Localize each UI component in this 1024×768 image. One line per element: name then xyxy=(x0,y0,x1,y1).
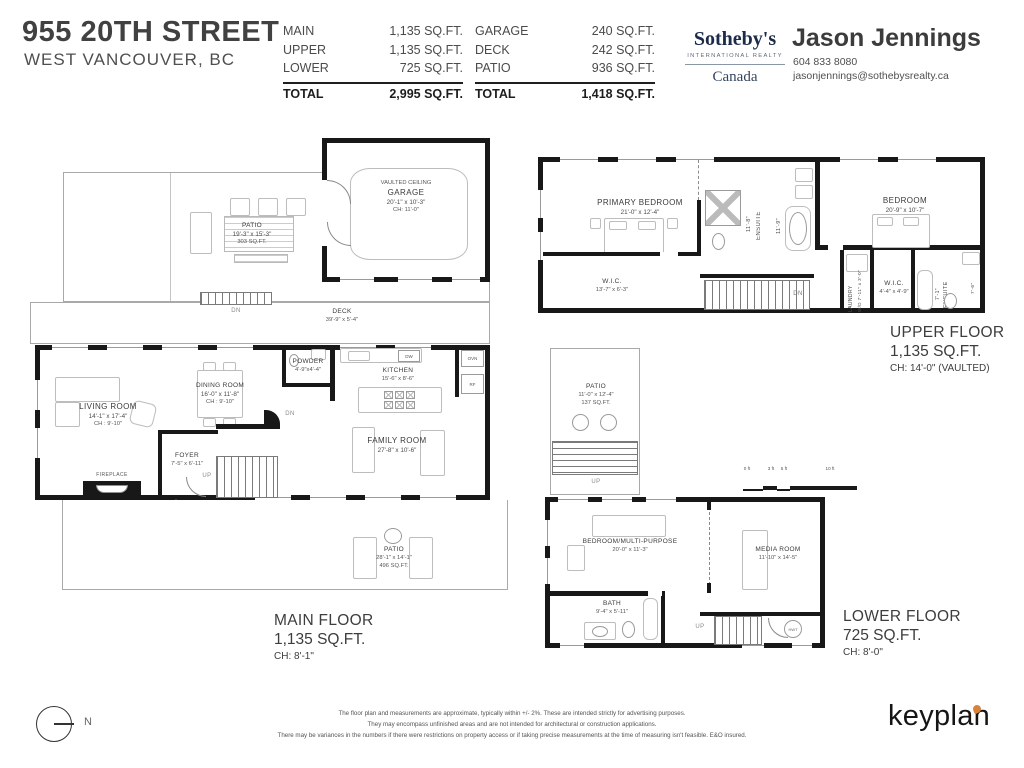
room-name: FOYER xyxy=(171,452,203,461)
patio-chair-icon xyxy=(572,414,589,431)
pillow-icon xyxy=(609,221,627,230)
area-value: 242 SQ.FT. xyxy=(592,43,655,62)
window-icon xyxy=(162,345,198,350)
room-name: FAMILY ROOM xyxy=(367,436,426,447)
area-label: UPPER xyxy=(283,43,326,62)
patio-step-line xyxy=(170,173,171,301)
patio-armchair-icon xyxy=(409,537,433,579)
area-table-exterior: GARAGE 240 SQ.FT. DECK 242 SQ.FT. PATIO … xyxy=(475,24,655,101)
burner-icon xyxy=(395,391,404,399)
area-value: 936 SQ.FT. xyxy=(592,61,655,80)
sink-icon xyxy=(592,626,608,637)
window-icon xyxy=(340,277,374,282)
window-icon xyxy=(538,190,543,218)
patio-chair-icon xyxy=(286,198,306,216)
room-dims: 7'-5" x 6'-11" xyxy=(171,461,203,469)
wall-segment xyxy=(158,430,162,500)
fireplace-opening xyxy=(96,485,128,493)
room-name: DECK xyxy=(326,308,358,317)
window-icon xyxy=(602,497,632,502)
window-icon xyxy=(840,157,878,162)
room-name: BEDROOM xyxy=(883,196,927,207)
scale-segment xyxy=(743,489,763,491)
room-label-primary-bedroom: PRIMARY BEDROOM 21'-0" x 12'-4" xyxy=(597,198,683,217)
dishwasher-icon: DW xyxy=(398,350,420,362)
main-floor-title: MAIN FLOOR 1,135 SQ.FT. CH: 8'-1" xyxy=(274,612,373,663)
room-label-garage: VAULTED CEILING GARAGE 20'-1" x 10'-3" C… xyxy=(381,180,432,215)
entry-stairs xyxy=(552,441,638,475)
scale-segment xyxy=(763,486,777,490)
fridge-icon: RF xyxy=(461,374,484,394)
floor-ceiling: CH: 14'-0" (VAULTED) xyxy=(890,363,1004,375)
area-value: 725 SQ.FT. xyxy=(400,61,463,80)
agent-name: Jason Jennings xyxy=(792,24,981,53)
wall-segment xyxy=(700,274,814,278)
room-dims: 28'-1" x 14'-1" xyxy=(376,555,412,563)
window-icon xyxy=(545,520,550,546)
bbq-icon xyxy=(190,212,212,254)
area-label: GARAGE xyxy=(475,24,529,43)
patio-table-icon xyxy=(384,528,402,544)
room-name: PRIMARY BEDROOM xyxy=(597,198,683,209)
area-total-value: 2,995 SQ.FT. xyxy=(389,87,463,101)
sink-icon xyxy=(795,168,813,182)
wall-segment xyxy=(282,383,334,387)
room-label-powder: POWDER 4'-9"x4'-4" xyxy=(292,358,323,375)
area-row-garage: GARAGE 240 SQ.FT. xyxy=(475,24,655,43)
wall-segment xyxy=(455,345,459,397)
window-icon xyxy=(792,643,812,648)
area-label: MAIN xyxy=(283,24,314,43)
up-marker: UP xyxy=(591,479,600,485)
door-opening xyxy=(648,591,662,596)
wall-segment xyxy=(911,250,915,313)
burner-icon xyxy=(406,391,415,399)
window-icon xyxy=(398,277,432,282)
floor-ceiling: CH: 8'-0" xyxy=(843,647,961,659)
hot-water-tank-icon: HWT xyxy=(784,620,802,638)
floor-name: LOWER FLOOR xyxy=(843,608,961,627)
dining-chair-icon xyxy=(203,418,216,427)
scale-tick: 5 ft xyxy=(781,466,787,471)
fireplace-label: FIREPLACE xyxy=(96,472,127,478)
room-label-dining: DINING ROOM 16'-0" x 11'-8" CH : 9'-10" xyxy=(196,382,244,407)
window-icon xyxy=(558,497,588,502)
wall-segment xyxy=(282,345,286,387)
room-dims: 11'-0" x 12'-4" xyxy=(578,392,613,400)
floor-ceiling: CH: 8'-1" xyxy=(274,651,373,663)
divider xyxy=(685,64,785,65)
room-name: W.I.C. xyxy=(596,278,628,287)
room-dims: 19'-3" x 15'-3" xyxy=(233,231,272,240)
disclaimer-line: The floor plan and measurements are appr… xyxy=(0,710,1024,717)
room-area: 137 SQ.FT. xyxy=(578,400,613,408)
room-dims: 20'-1" x 10'-3" xyxy=(381,199,432,208)
main-stairs xyxy=(216,456,278,498)
dn-marker: DN xyxy=(231,308,240,314)
toilet-icon xyxy=(944,293,957,309)
ensuite-dim2-vertical: 7'-6" xyxy=(971,268,976,294)
room-dims: 14'-1" x 17'-4" xyxy=(79,413,137,422)
window-icon xyxy=(107,345,143,350)
area-total-label: TOTAL xyxy=(475,87,516,101)
floor-name: UPPER FLOOR xyxy=(890,324,1004,343)
dn-marker: DN xyxy=(793,291,802,297)
wall-segment xyxy=(661,596,665,648)
upper-floor-title: UPPER FLOOR 1,135 SQ.FT. CH: 14'-0" (VAU… xyxy=(890,324,1004,375)
room-label-patio-top: PATIO 19'-3" x 15'-3" 303 SQ.FT. xyxy=(233,222,272,247)
room-dims: 21'-0" x 12'-4" xyxy=(597,209,683,218)
room-label-deck: DECK 39'-9" x 5'-4" xyxy=(326,308,358,325)
room-name: LIVING ROOM xyxy=(79,402,137,413)
patio-chair-icon xyxy=(258,198,278,216)
room-name: KITCHEN xyxy=(382,367,414,376)
wall-segment xyxy=(158,430,218,434)
area-row-upper: UPPER 1,135 SQ.FT. xyxy=(283,43,463,62)
area-row-patio: PATIO 936 SQ.FT. xyxy=(475,61,655,80)
address-line2: WEST VANCOUVER, BC xyxy=(24,50,235,70)
floor-area: 725 SQ.FT. xyxy=(843,627,961,646)
wall-segment xyxy=(707,500,711,510)
deck-outline xyxy=(30,302,490,344)
window-icon xyxy=(545,558,550,584)
burner-icon xyxy=(384,391,393,399)
area-total-label: TOTAL xyxy=(283,87,324,101)
laundry-label-vertical: LAUNDRY xyxy=(848,274,854,312)
window-icon xyxy=(560,157,598,162)
area-label: DECK xyxy=(475,43,510,62)
room-dims: 4'-4" x 4'-9" xyxy=(879,289,908,297)
room-label-family: FAMILY ROOM 27'-8" x 10'-6" xyxy=(367,436,426,455)
brokerage-name: Sotheby's xyxy=(676,28,794,51)
disclaimer-line: They may encompass unfinished areas and … xyxy=(0,721,1024,728)
toilet-icon xyxy=(712,233,725,250)
floor-area: 1,135 SQ.FT. xyxy=(890,343,1004,362)
agent-phone: 604 833 8080 xyxy=(793,56,857,68)
wall-segment xyxy=(545,591,665,596)
ensuite-label-vertical: ENSUITE xyxy=(756,192,762,240)
wall-segment xyxy=(815,157,820,250)
room-dims: 39'-9" x 5'-4" xyxy=(326,317,358,325)
floorplan-flyer: 955 20TH STREET WEST VANCOUVER, BC MAIN … xyxy=(0,0,1024,768)
burner-icon xyxy=(384,401,393,409)
window-icon xyxy=(52,345,88,350)
room-name: BATH xyxy=(596,600,628,609)
area-value: 1,135 SQ.FT. xyxy=(389,43,463,62)
area-row-total-interior: TOTAL 2,995 SQ.FT. xyxy=(283,82,463,101)
sink-icon xyxy=(795,185,813,199)
brokerage-tagline: INTERNATIONAL REALTY xyxy=(676,53,794,59)
room-label-bedroom-multi: BEDROOM/MULTI-PURPOSE 20'-0" x 11'-3" xyxy=(583,538,678,555)
agent-email: jasonjennings@sothebysrealty.ca xyxy=(793,70,949,82)
window-icon xyxy=(618,157,656,162)
room-label-bedroom: BEDROOM 20'-9" x 10'-7" xyxy=(883,196,927,215)
window-icon xyxy=(646,497,676,502)
sofa-icon xyxy=(592,515,666,537)
laundry-dim-vertical: W/D 7'-11" x 3'-0" xyxy=(857,272,862,312)
bathtub-basin-icon xyxy=(789,212,807,245)
floor-name: MAIN FLOOR xyxy=(274,612,373,631)
brokerage-logo: Sotheby's INTERNATIONAL REALTY Canada xyxy=(676,28,794,86)
ensuite-dim-vertical: 11'-8" xyxy=(746,198,752,232)
window-icon xyxy=(898,157,936,162)
area-value: 1,135 SQ.FT. xyxy=(389,24,463,43)
area-row-lower: LOWER 725 SQ.FT. xyxy=(283,61,463,80)
nightstand-icon xyxy=(590,218,601,229)
up-marker: UP xyxy=(695,624,704,630)
floor-area: 1,135 SQ.FT. xyxy=(274,631,373,650)
wall-segment xyxy=(707,583,711,593)
wall-segment xyxy=(330,345,335,401)
glass-wall xyxy=(698,160,699,200)
patio-bench-icon xyxy=(234,254,288,263)
room-dims: 15'-6" x 8'-6" xyxy=(382,376,414,384)
area-row-total-exterior: TOTAL 1,418 SQ.FT. xyxy=(475,82,655,101)
room-dims: 20'-0" x 11'-3" xyxy=(583,547,678,555)
room-area: 496 SQ.FT. xyxy=(376,563,412,571)
room-name: GARAGE xyxy=(381,188,432,199)
pillow-icon xyxy=(638,221,656,230)
room-dims: 4'-9"x4'-4" xyxy=(292,367,323,375)
ensuite-dim-vertical: 7'-1" xyxy=(935,272,941,300)
room-name: BEDROOM/MULTI-PURPOSE xyxy=(583,538,678,547)
room-note: VAULTED CEILING xyxy=(381,180,432,188)
room-label-living: LIVING ROOM 14'-1" x 17'-4" CH : 9'-10" xyxy=(79,402,137,429)
window-icon xyxy=(35,380,40,410)
room-label-entry-patio: PATIO 11'-0" x 12'-4" 137 SQ.FT. xyxy=(578,383,613,407)
area-label: PATIO xyxy=(475,61,511,80)
room-name: W.I.C. xyxy=(879,280,908,289)
wall-segment xyxy=(870,250,874,313)
window-icon xyxy=(560,643,584,648)
room-ch: CH : 9'-10" xyxy=(196,399,244,407)
room-area: 303 SQ.FT. xyxy=(233,239,272,247)
lower-floor-title: LOWER FLOOR 725 SQ.FT. CH: 8'-0" xyxy=(843,608,961,659)
shower-icon xyxy=(705,190,741,226)
sofa-chaise-icon xyxy=(55,402,80,427)
room-dims: 9'-4" x 5'-11" xyxy=(596,609,628,617)
window-icon xyxy=(452,277,480,282)
window-icon xyxy=(217,345,253,350)
room-label-media: MEDIA ROOM 11'-10" x 14'-5" xyxy=(755,546,800,563)
room-label-wic1: W.I.C. 13'-7" x 6'-3" xyxy=(596,278,628,295)
area-row-main: MAIN 1,135 SQ.FT. xyxy=(283,24,463,43)
wall-segment xyxy=(216,424,268,429)
sink-icon xyxy=(962,252,980,265)
room-label-kitchen: KITCHEN 15'-6" x 8'-6" xyxy=(382,367,414,384)
burner-icon xyxy=(395,401,404,409)
room-dims: 16'-0" x 11'-8" xyxy=(196,391,244,400)
area-value: 240 SQ.FT. xyxy=(592,24,655,43)
room-dims: 13'-7" x 6'-3" xyxy=(596,287,628,295)
bathtub-icon xyxy=(917,270,933,310)
patio-chair-icon xyxy=(230,198,250,216)
oven-icon: OVN xyxy=(461,350,484,367)
room-name: POWDER xyxy=(292,358,323,367)
area-table-interior: MAIN 1,135 SQ.FT. UPPER 1,135 SQ.FT. LOW… xyxy=(283,24,463,101)
bathtub-icon xyxy=(643,598,658,640)
area-total-value: 1,418 SQ.FT. xyxy=(581,87,655,101)
dining-chair-icon xyxy=(203,362,216,371)
room-dims: 11'-10" x 14'-5" xyxy=(755,555,800,563)
room-label-patio-bottom: PATIO 28'-1" x 14'-1" 496 SQ.FT. xyxy=(376,546,412,570)
room-ch: CH: 11'-0" xyxy=(381,207,432,215)
deck-stairs xyxy=(200,292,272,305)
room-ch: CH : 9'-10" xyxy=(79,421,137,429)
ensuite-dim2-vertical: 11'-9" xyxy=(776,204,782,234)
patio-chair-icon xyxy=(600,414,617,431)
address-line1: 955 20TH STREET xyxy=(22,16,279,49)
area-row-deck: DECK 242 SQ.FT. xyxy=(475,43,655,62)
door-opening xyxy=(660,252,678,256)
wall-segment xyxy=(840,250,844,313)
room-label-foyer: FOYER 7'-5" x 6'-11" xyxy=(171,452,203,469)
kitchen-sink-icon xyxy=(348,351,370,361)
room-name: PATIO xyxy=(233,222,272,231)
brokerage-country: Canada xyxy=(676,69,794,86)
pillow-icon xyxy=(877,217,893,226)
room-name: PATIO xyxy=(376,546,412,555)
scale-tick: 10 ft xyxy=(826,466,835,471)
lower-stairs xyxy=(714,616,762,645)
nightstand-icon xyxy=(667,218,678,229)
disclaimer-line: There may be variances in the numbers if… xyxy=(0,732,1024,739)
sofa-icon xyxy=(55,377,120,402)
toilet-icon xyxy=(622,621,635,638)
room-name: PATIO xyxy=(578,383,613,392)
burner-icon xyxy=(406,401,415,409)
room-name: MEDIA ROOM xyxy=(755,546,800,555)
window-icon xyxy=(676,157,714,162)
scale-tick: 0 ft xyxy=(744,466,750,471)
room-dims: 27'-8" x 10'-6" xyxy=(367,447,426,456)
scale-segment xyxy=(790,486,857,490)
window-icon xyxy=(35,428,40,458)
room-name: DINING ROOM xyxy=(196,382,244,391)
patio-armchair-icon xyxy=(353,537,377,579)
pillow-icon xyxy=(903,217,919,226)
room-label-bath: BATH 9'-4" x 5'-11" xyxy=(596,600,628,617)
sliding-partition xyxy=(709,502,710,590)
wall-segment xyxy=(697,200,701,256)
dining-chair-icon xyxy=(223,362,236,371)
scale-segment xyxy=(777,489,790,491)
patio-outline xyxy=(62,500,508,590)
scale-tick: 3 ft xyxy=(768,466,774,471)
area-label: LOWER xyxy=(283,61,329,80)
dn-marker: DN xyxy=(285,411,294,417)
room-label-wic2: W.I.C. 4'-4" x 4'-9" xyxy=(879,280,908,297)
